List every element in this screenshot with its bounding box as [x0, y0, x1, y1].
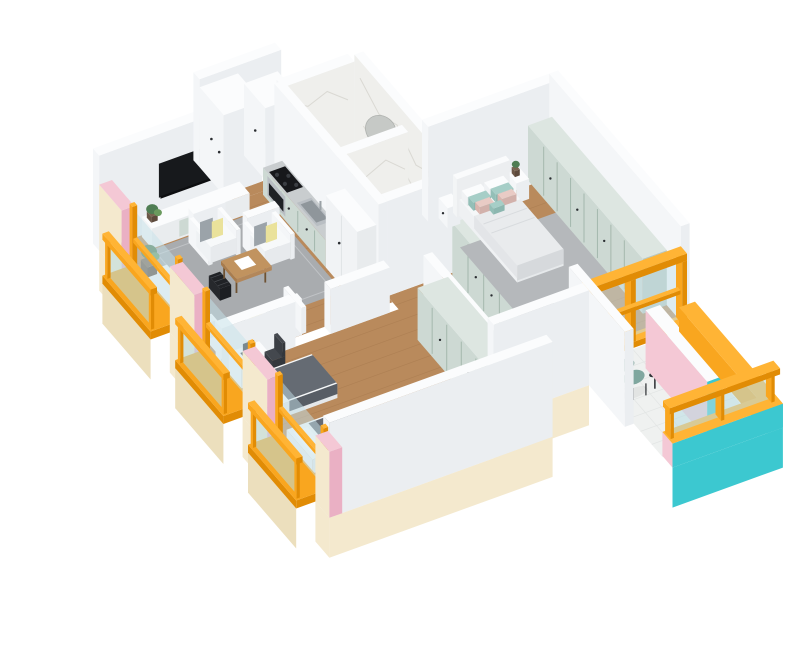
- window-2-frame-upright-front: [205, 290, 210, 354]
- terrace-railing-post-front: [721, 394, 724, 421]
- stand-plant: [154, 209, 162, 216]
- burner: [286, 174, 290, 178]
- knob: [442, 212, 444, 214]
- closet-knob: [490, 294, 492, 296]
- armchair-2-arm-right-front: [291, 233, 295, 260]
- wardrobe-handle: [218, 151, 221, 154]
- burner: [275, 173, 279, 177]
- sofa-arm-right-front: [301, 307, 306, 335]
- terrace-railing-post-front: [772, 375, 775, 402]
- burner: [294, 183, 298, 187]
- headboard-left: [453, 175, 457, 218]
- bedroom-back-wall-left: [422, 120, 428, 222]
- living-front-wall-b-left: [324, 282, 330, 334]
- window-2-railing-post-front: [224, 375, 227, 414]
- pier-3-front: [329, 447, 342, 518]
- nightstand-plant: [512, 161, 520, 168]
- wardrobe-knob: [549, 177, 551, 179]
- terrace-railing-post-front: [671, 412, 674, 439]
- burner: [283, 182, 287, 186]
- tall-cabinet-knob: [338, 242, 341, 245]
- wardrobe-knob: [439, 339, 441, 341]
- wardrobe-knob: [576, 209, 578, 211]
- window-3-frame-upright-front: [278, 374, 283, 438]
- terrace-left-wall-front: [625, 329, 634, 427]
- window-1-frame-upright-front: [132, 205, 137, 269]
- wardrobe-handle: [254, 129, 257, 132]
- window-1-railing-post-front: [151, 291, 154, 330]
- wardrobe-knob: [603, 240, 605, 242]
- hall-back-panel-left: [193, 72, 199, 167]
- window-3-railing-post-front: [297, 460, 300, 499]
- living-back-wall-left: [93, 149, 99, 251]
- cabinet-knob: [306, 228, 308, 230]
- apartment-isometric-scene: [0, 0, 800, 672]
- desk-chair-back-front: [282, 342, 285, 357]
- floorplan-3d-render: [0, 0, 800, 672]
- closet-knob: [475, 276, 477, 278]
- wardrobe-handle: [210, 138, 213, 141]
- cabinet-knob: [288, 207, 290, 209]
- armchair-1-arm-right-front: [237, 229, 241, 255]
